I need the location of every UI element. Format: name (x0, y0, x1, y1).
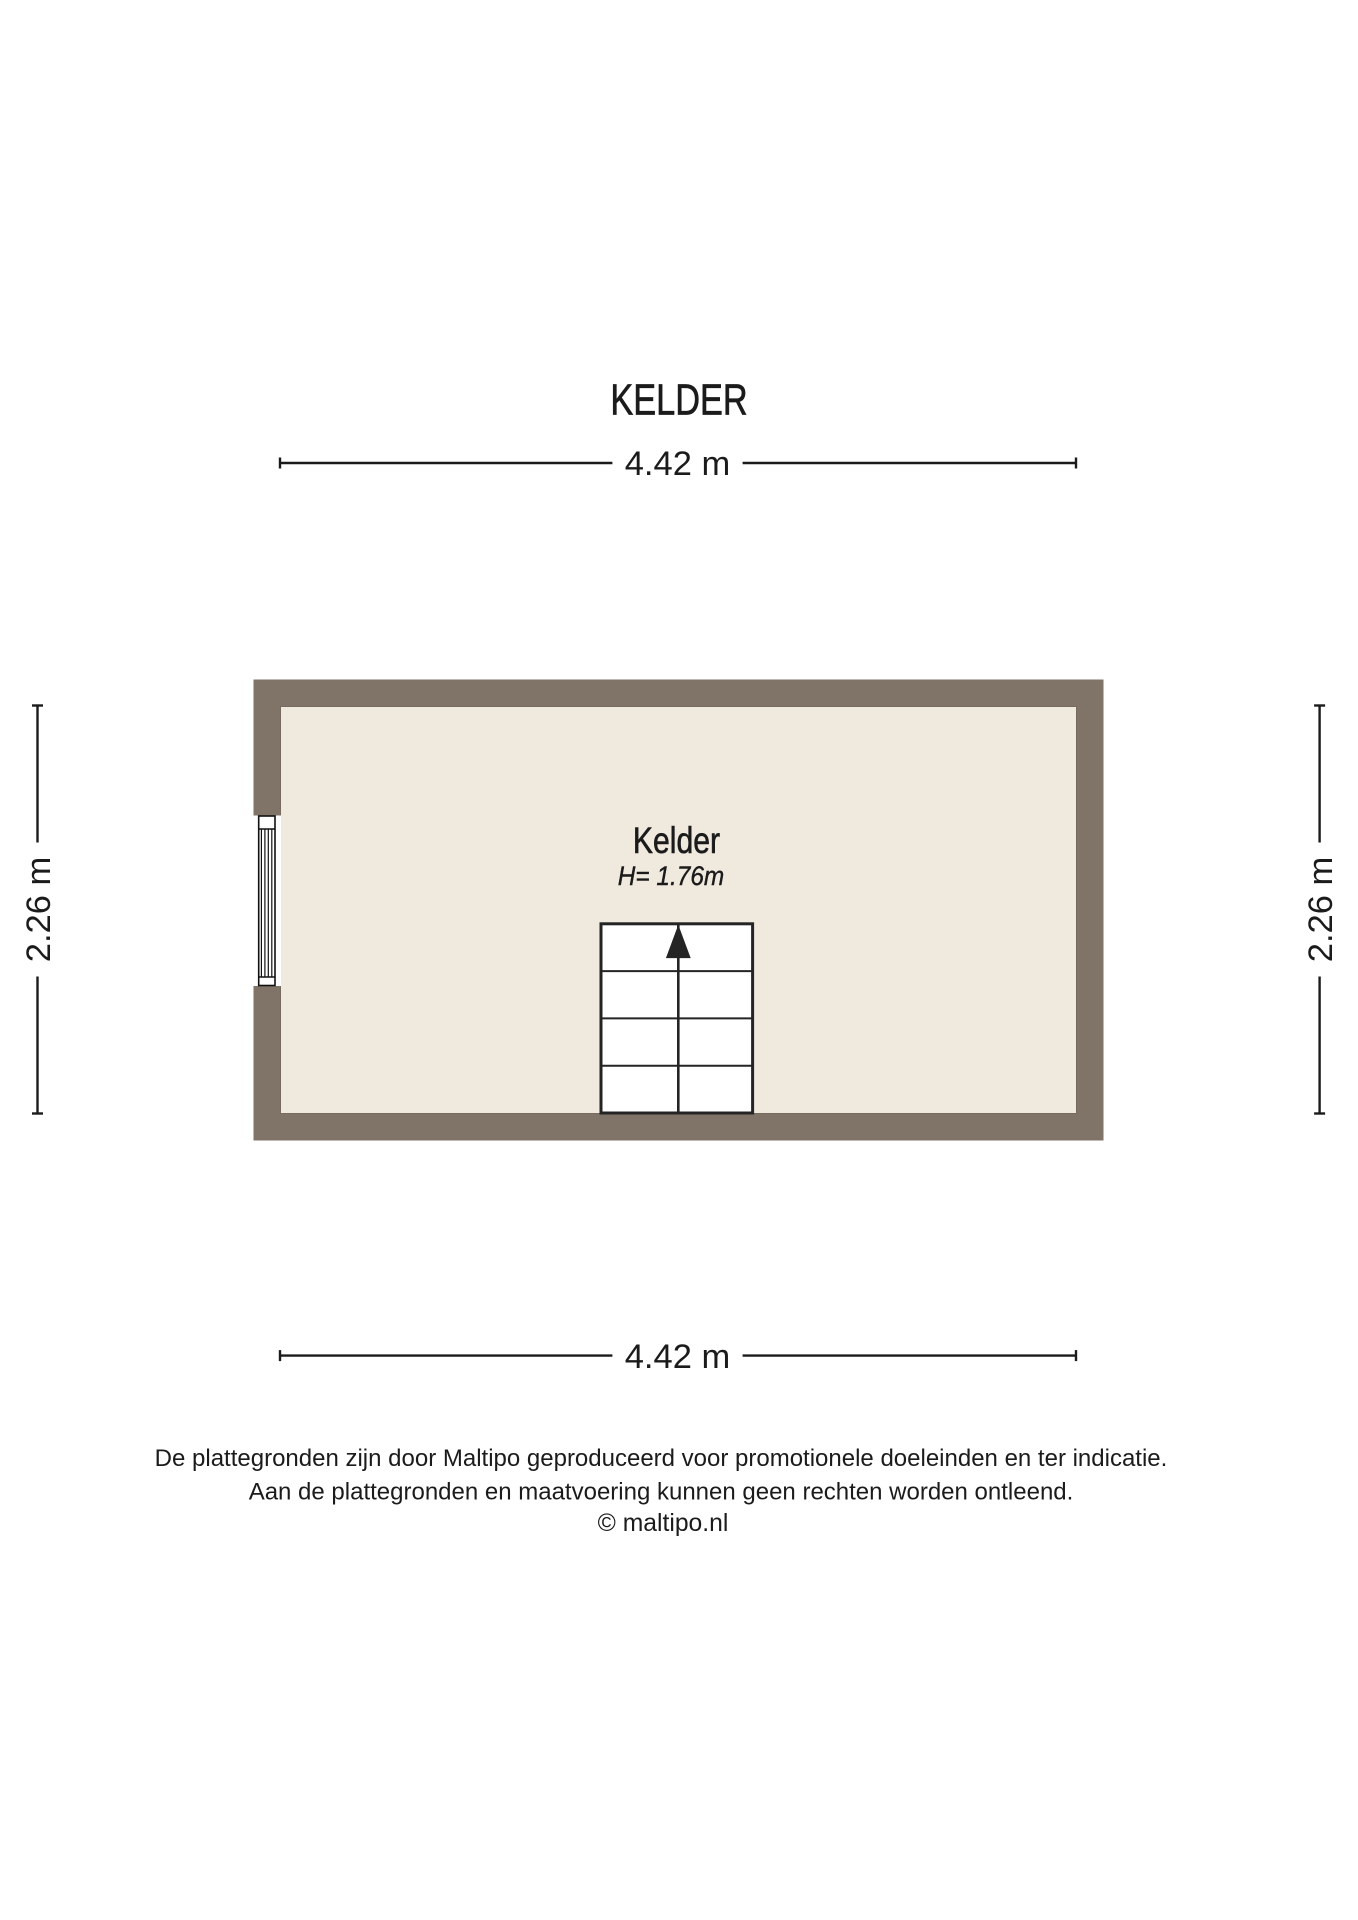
svg-text:Aan de plattegronden en maatvo: Aan de plattegronden en maatvoering kunn… (249, 1479, 1074, 1506)
svg-text:KELDER: KELDER (610, 375, 747, 424)
svg-text:4.42 m: 4.42 m (625, 445, 730, 483)
svg-text:H= 1.76m: H= 1.76m (618, 862, 725, 891)
svg-text:© maltipo.nl: © maltipo.nl (598, 1510, 729, 1537)
svg-text:2.26 m: 2.26 m (1302, 857, 1340, 962)
svg-text:De plattegronden zijn door Mal: De plattegronden zijn door Maltipo gepro… (155, 1445, 1168, 1472)
svg-text:4.42 m: 4.42 m (625, 1338, 730, 1376)
svg-text:Kelder: Kelder (633, 820, 720, 862)
svg-text:2.26 m: 2.26 m (20, 857, 58, 962)
